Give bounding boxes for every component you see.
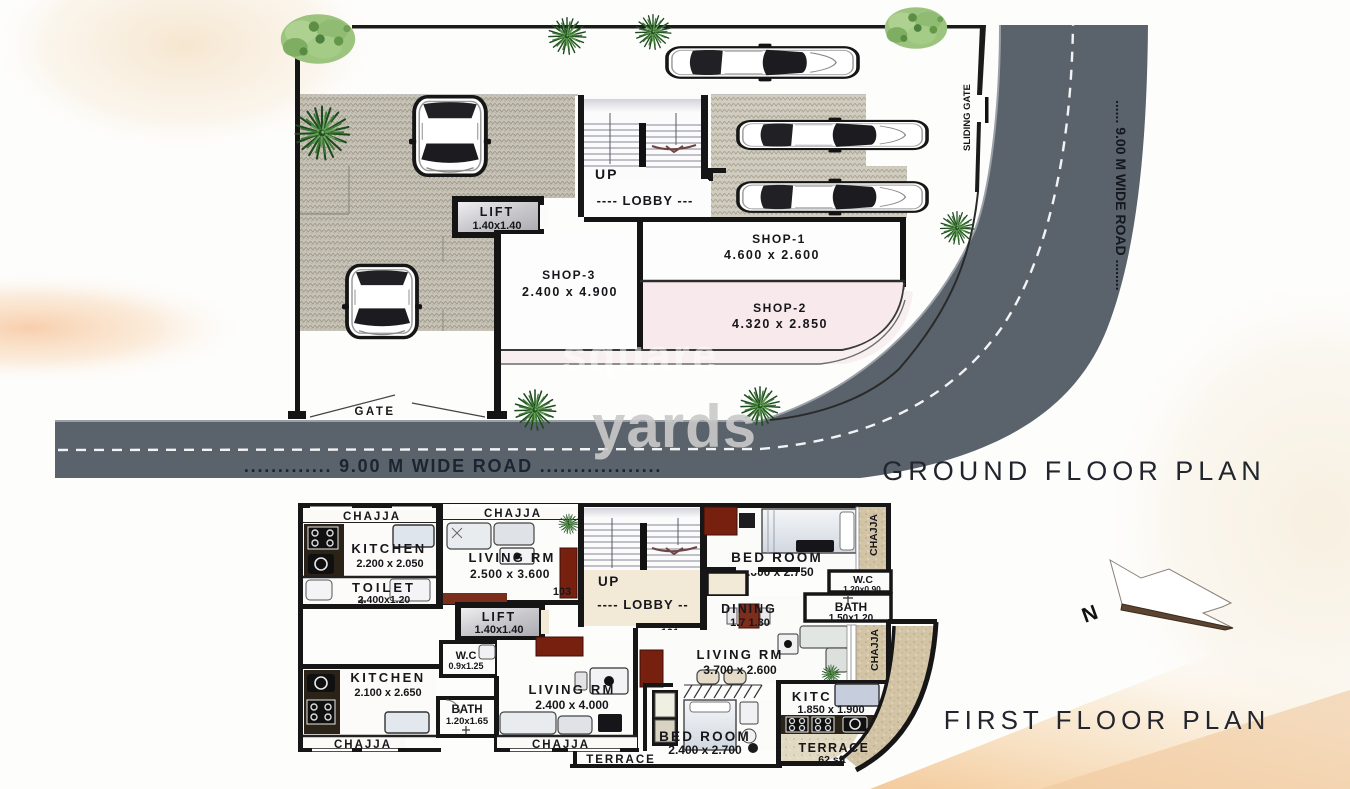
svg-text:2.400 x 2.700: 2.400 x 2.700: [668, 743, 742, 757]
svg-text:FIRST FLOOR PLAN: FIRST FLOOR PLAN: [944, 705, 1271, 735]
svg-text:SHOP-1: SHOP-1: [752, 232, 806, 246]
svg-text:3.700 x 2.600: 3.700 x 2.600: [703, 663, 777, 677]
svg-text:1.7 1.30: 1.7 1.30: [730, 617, 770, 629]
svg-text:1.20x1.65: 1.20x1.65: [446, 716, 489, 727]
svg-text:UP: UP: [595, 166, 618, 182]
svg-text:1.850 x 1.900: 1.850 x 1.900: [797, 704, 864, 716]
svg-text:103: 103: [553, 586, 571, 598]
svg-text:BED ROOM: BED ROOM: [731, 550, 823, 565]
svg-text:BED ROOM: BED ROOM: [659, 729, 751, 744]
svg-text:SHOP-2: SHOP-2: [753, 301, 807, 315]
svg-text:CHAJJA: CHAJJA: [868, 514, 880, 556]
svg-text:4.600 x 2.600: 4.600 x 2.600: [724, 248, 820, 262]
svg-text:---- LOBBY ---: ---- LOBBY ---: [597, 193, 694, 208]
svg-text:CHAJJA: CHAJJA: [532, 739, 590, 751]
svg-text:KITCHEN: KITCHEN: [350, 670, 425, 685]
svg-text:LIVING RM: LIVING RM: [469, 550, 556, 565]
svg-text:---- LOBBY --: ---- LOBBY --: [597, 597, 688, 612]
svg-text:BATH: BATH: [451, 704, 482, 716]
svg-text:BATH: BATH: [835, 600, 867, 614]
svg-text:TERRACE: TERRACE: [799, 741, 870, 755]
svg-text:...... 9.00 M WIDE ROAD ......: ...... 9.00 M WIDE ROAD ........: [1113, 100, 1129, 291]
svg-text:SLIDING GATE: SLIDING GATE: [962, 84, 973, 151]
svg-text:KITC: KITC: [792, 689, 832, 704]
svg-text:62 sft: 62 sft: [818, 754, 846, 766]
svg-text:yards: yards: [592, 393, 757, 460]
svg-text:2.200 x 2.050: 2.200 x 2.050: [356, 558, 423, 570]
svg-text:TOILET: TOILET: [352, 580, 416, 595]
svg-text:2.400 x 4.000: 2.400 x 4.000: [535, 698, 609, 712]
svg-text:CHAJJA: CHAJJA: [343, 511, 401, 523]
svg-text:LIFT: LIFT: [482, 610, 516, 624]
svg-text:CHAJJA: CHAJJA: [484, 508, 542, 520]
svg-text:4.320 x 2.850: 4.320 x 2.850: [732, 317, 828, 331]
svg-text:SHOP-3: SHOP-3: [542, 268, 596, 282]
svg-text:square: square: [562, 331, 718, 380]
svg-text:LIVING RM: LIVING RM: [697, 647, 784, 662]
svg-text:1.50x1.20: 1.50x1.20: [829, 613, 874, 624]
svg-text:GROUND FLOOR PLAN: GROUND FLOOR PLAN: [882, 456, 1266, 486]
svg-text:LIFT: LIFT: [480, 205, 514, 219]
svg-text:TERRACE: TERRACE: [586, 754, 656, 766]
svg-text:0.9x1.25: 0.9x1.25: [448, 661, 483, 671]
svg-text:2.400 x 4.900: 2.400 x 4.900: [522, 285, 618, 299]
svg-text:2.400x1.20: 2.400x1.20: [358, 594, 411, 606]
svg-text:DINING: DINING: [721, 602, 777, 616]
svg-text:KITCHEN: KITCHEN: [351, 541, 426, 556]
svg-text:GATE: GATE: [354, 406, 395, 418]
svg-text:CHAJJA: CHAJJA: [869, 629, 881, 671]
svg-text:2.100 x 2.650: 2.100 x 2.650: [354, 687, 421, 699]
svg-text:1.40x1.40: 1.40x1.40: [475, 624, 524, 636]
svg-text:CHAJJA: CHAJJA: [334, 739, 392, 751]
svg-text:LIVING RM: LIVING RM: [529, 682, 616, 697]
svg-text:2.500 x 3.600: 2.500 x 3.600: [470, 567, 550, 581]
svg-text:UP: UP: [598, 574, 620, 589]
